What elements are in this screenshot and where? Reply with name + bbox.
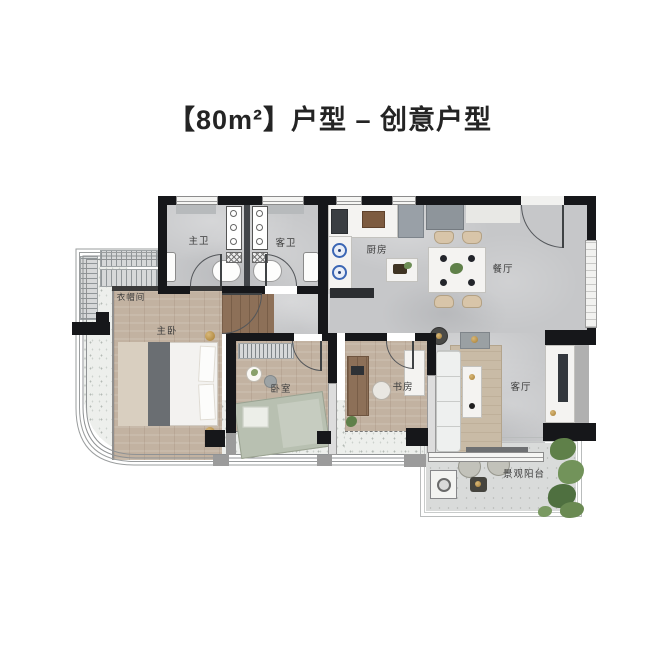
label-balcony: 景观阳台 <box>503 466 545 480</box>
stove-burner-icon <box>332 243 347 258</box>
wall-top-2 <box>218 196 262 205</box>
dining-chair <box>462 295 482 308</box>
balcony-sliding-door <box>428 452 544 462</box>
dining-chair <box>434 295 454 308</box>
terrace-paving-side <box>80 256 98 320</box>
washing-machine-door-icon <box>437 478 451 492</box>
terrace-wall-stub2 <box>96 312 109 335</box>
study-laptop <box>351 366 364 375</box>
window-right-curtain <box>585 240 597 328</box>
balcony-table-decor <box>475 481 481 487</box>
window-post-3 <box>404 454 426 467</box>
master-bedroom-door-leaf <box>222 293 262 295</box>
wall-kitchen-left <box>318 196 328 334</box>
bedroom-wardrobe <box>238 343 294 359</box>
bedroom-door-leaf <box>320 341 322 371</box>
coffee-table-decor <box>469 374 475 380</box>
label-bedroom: 卧室 <box>270 381 291 395</box>
tv-screen <box>558 354 568 402</box>
wall-behind-tv <box>575 345 589 423</box>
plate <box>440 255 447 262</box>
wall-study-living-bottom <box>427 375 436 453</box>
shower-jet-icon <box>256 224 263 231</box>
plate <box>468 255 475 262</box>
master-bath-door-leaf <box>220 254 222 286</box>
wall-bedroom-study-bottom <box>328 383 337 455</box>
wall-study-top-1 <box>345 333 387 341</box>
window-top-guest-bath <box>262 196 304 205</box>
wall-bath-bottom-1 <box>158 286 190 294</box>
label-guest-bath: 客卫 <box>275 235 296 249</box>
shower-jet-icon <box>230 210 237 217</box>
dining-cabinet <box>426 204 464 230</box>
shower-base-left <box>226 252 242 263</box>
window-post-1 <box>213 455 229 466</box>
wall-right-top <box>587 196 596 242</box>
master-bed-blanket <box>118 342 148 426</box>
console-kettle <box>471 336 478 343</box>
label-dining: 餐厅 <box>492 261 513 275</box>
wall-bath-bottom-3 <box>297 286 320 294</box>
dining-chair <box>462 231 482 244</box>
study-chair <box>372 381 391 400</box>
bath-vanity-left <box>176 205 216 214</box>
label-cloakroom: 衣帽间 <box>117 291 146 303</box>
washing-machine <box>430 470 457 499</box>
guest-bath-door-leaf <box>265 254 267 286</box>
bedroom-bed-pillow <box>243 407 269 428</box>
window-post-2 <box>317 455 332 466</box>
label-living: 客厅 <box>510 379 531 393</box>
coffee-table-kettle <box>469 403 475 409</box>
wall-stub-bottom-2 <box>317 431 331 444</box>
wall-master-bedroom-right <box>226 333 236 433</box>
shower-jet-icon <box>230 224 237 231</box>
entry-door-leaf <box>562 205 564 248</box>
master-bed-pillow <box>198 384 216 421</box>
bath-vanity-right <box>264 205 304 214</box>
label-master-bath: 主卫 <box>188 233 209 247</box>
entry-bench <box>466 204 520 223</box>
window-top-dining <box>392 196 416 205</box>
sofa <box>436 350 461 452</box>
plate <box>468 279 475 286</box>
wall-top-5 <box>416 196 521 205</box>
wall-bath-left <box>158 196 167 292</box>
kitchen-counter-dark <box>330 288 374 298</box>
label-kitchen: 厨房 <box>366 242 387 256</box>
toilet-guest-bath <box>303 252 319 282</box>
shower-jet-icon <box>230 238 237 245</box>
pillar-master-bedroom-right <box>226 433 236 455</box>
tv-plant-accent <box>550 410 556 416</box>
wall-tv-top <box>545 330 596 345</box>
cutting-board <box>362 211 385 228</box>
wall-stub-bottom-3 <box>406 428 428 446</box>
bath-divider-wall <box>244 205 250 286</box>
stove-burner-icon <box>332 265 347 280</box>
master-bed-runner <box>148 342 170 426</box>
label-master-bedroom: 主卧 <box>156 323 177 337</box>
nightstand-lamp <box>205 331 215 341</box>
wall-bedroom-top-1 <box>236 333 294 341</box>
shower-jet-icon <box>256 238 263 245</box>
study-desk <box>347 356 369 416</box>
shower-column-right <box>252 206 268 250</box>
terrace-paving-upper <box>100 250 158 267</box>
entry-door-opening <box>521 196 564 205</box>
plate <box>440 279 447 286</box>
dining-chair <box>434 231 454 244</box>
window-top-master-bath <box>176 196 218 205</box>
kitchen-sink <box>331 209 348 234</box>
wall-study-living-top <box>427 333 436 375</box>
side-table-decor <box>436 333 442 339</box>
wall-stub-bottom-1 <box>205 430 225 447</box>
window-top-kitchen <box>336 196 362 205</box>
floorplan-page: 【80m²】户型 – 创意户型 <box>0 0 660 660</box>
fridge <box>398 204 424 238</box>
master-bed-pillow <box>198 346 216 383</box>
terrace-paving-lower <box>100 269 158 287</box>
study-door-leaf <box>412 341 414 369</box>
wall-top-4 <box>362 196 392 205</box>
wall-bedroom-study-top <box>328 333 337 383</box>
shower-jet-icon <box>256 210 263 217</box>
floor-plan: 主卫 客卫 厨房 餐厅 衣帽间 主卧 卧室 书房 客厅 景观阳台 <box>0 0 660 660</box>
label-study: 书房 <box>392 379 413 393</box>
shower-column-left <box>226 206 242 250</box>
